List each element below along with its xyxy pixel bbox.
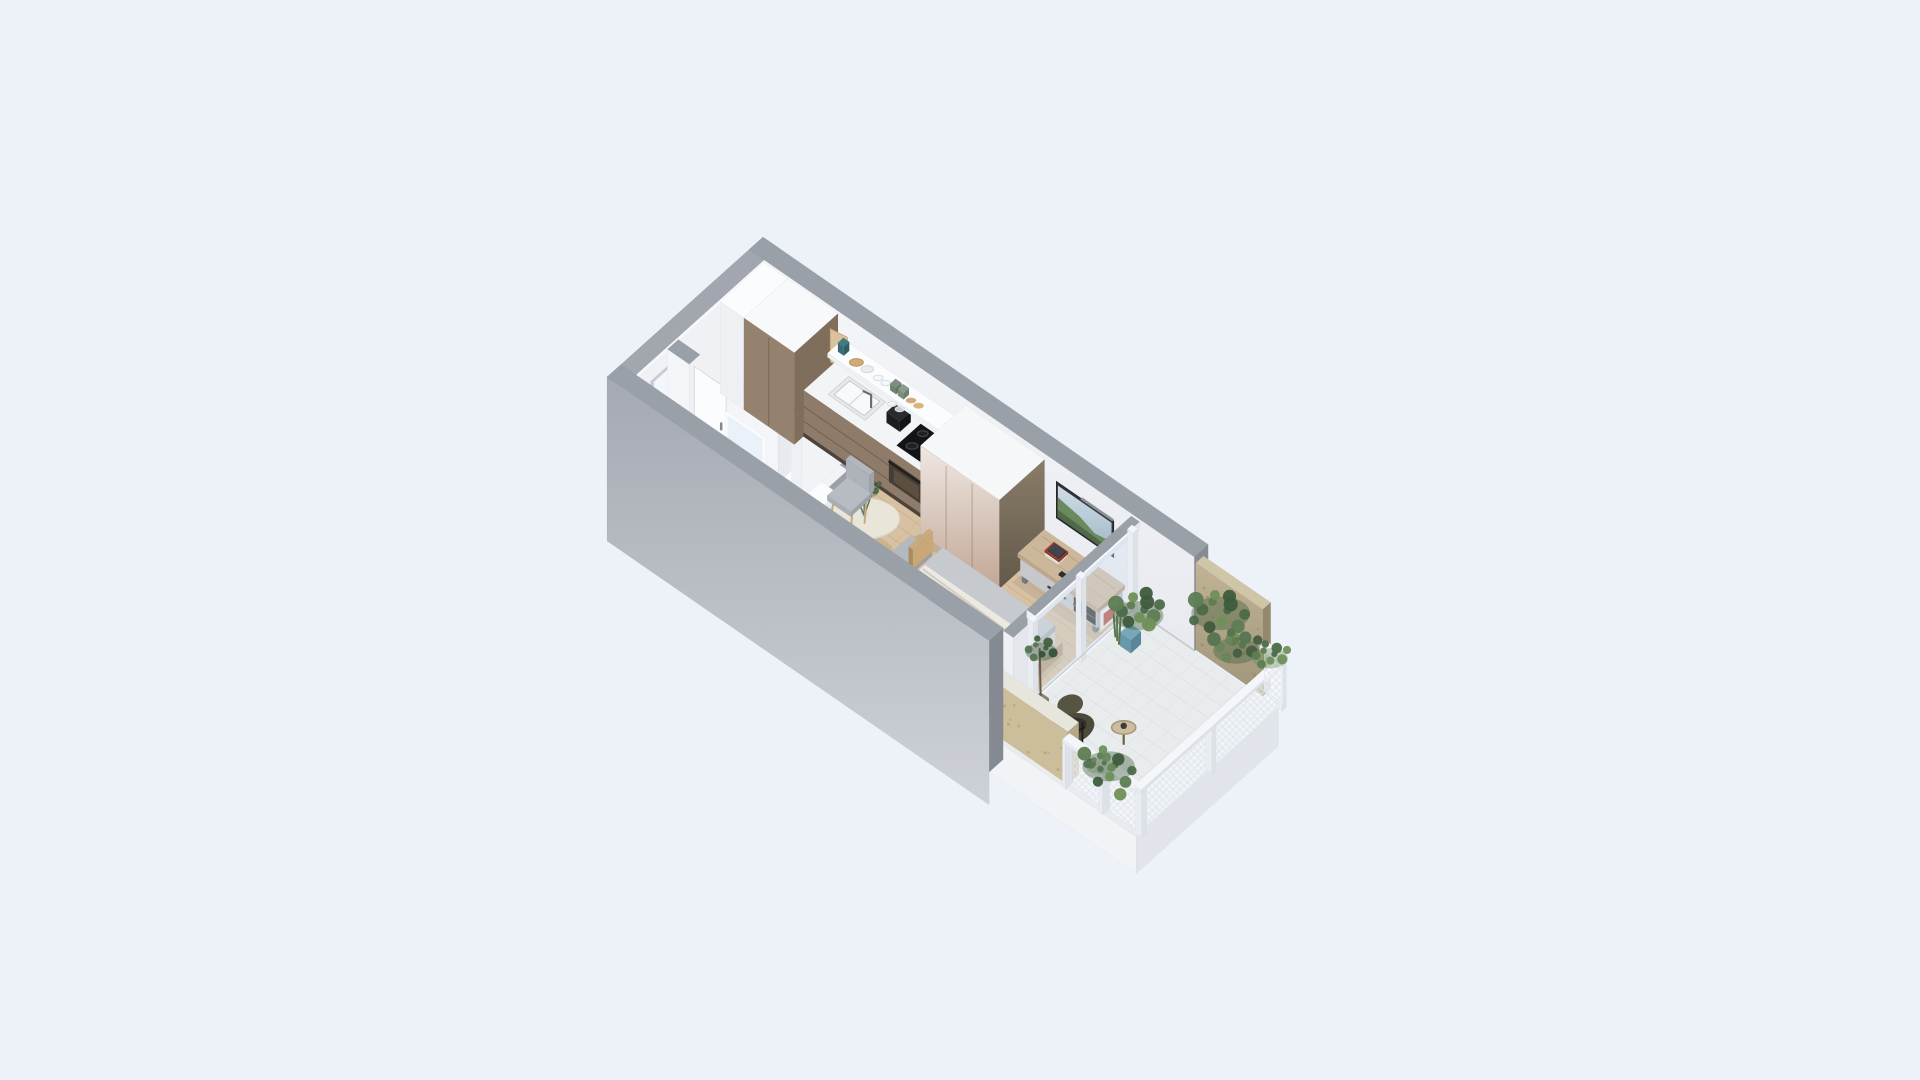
counter-glass-1 [888, 401, 897, 406]
wall-c-end-face [989, 628, 1003, 772]
shelf-glass-1 [873, 375, 883, 380]
apartment-render [607, 237, 1622, 874]
door-frame-post-2 [1076, 571, 1087, 663]
shelf-amber-glass-1 [906, 398, 917, 404]
counter-glass-2 [895, 407, 904, 412]
shelf-amber-glass-2 [913, 403, 924, 409]
shelf-glass-2 [881, 380, 891, 385]
canvas-background [0, 0, 1920, 1080]
floorplan-svg [0, 0, 1920, 1080]
shelf-wood-bowl [850, 359, 864, 367]
burner-1 [918, 431, 928, 437]
side-table-tray [1121, 723, 1127, 729]
shelf-white-bowl [861, 366, 874, 373]
burner-3 [906, 443, 918, 449]
